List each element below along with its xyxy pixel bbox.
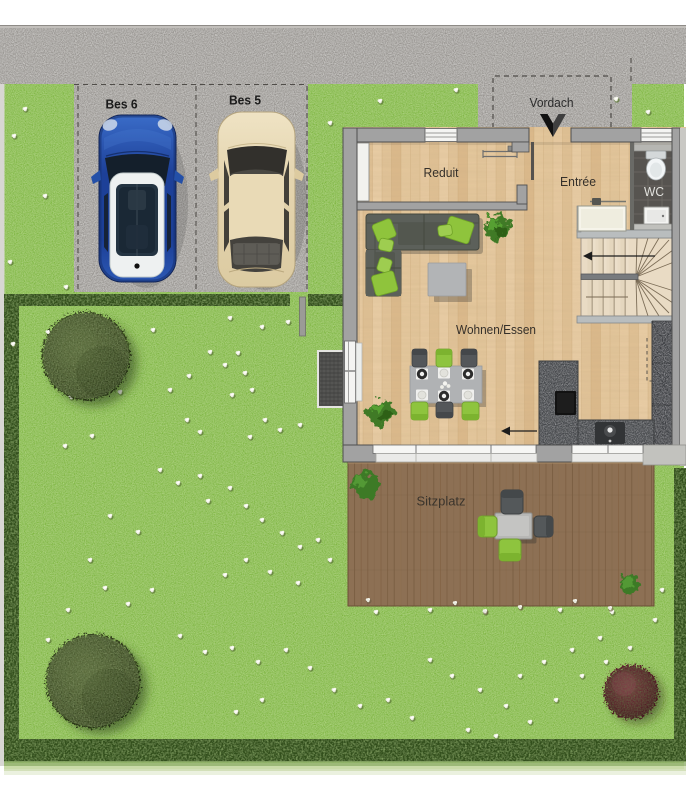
svg-text:Bes 6: Bes 6 [106,97,138,112]
svg-text:Entrée: Entrée [560,174,596,189]
svg-text:Wohnen/Essen: Wohnen/Essen [456,322,536,337]
svg-text:Vordach: Vordach [530,95,574,110]
svg-text:Bes 5: Bes 5 [229,93,261,108]
svg-text:Reduit: Reduit [424,165,459,180]
svg-text:Sitzplatz: Sitzplatz [417,494,466,509]
svg-text:WC: WC [644,184,664,199]
